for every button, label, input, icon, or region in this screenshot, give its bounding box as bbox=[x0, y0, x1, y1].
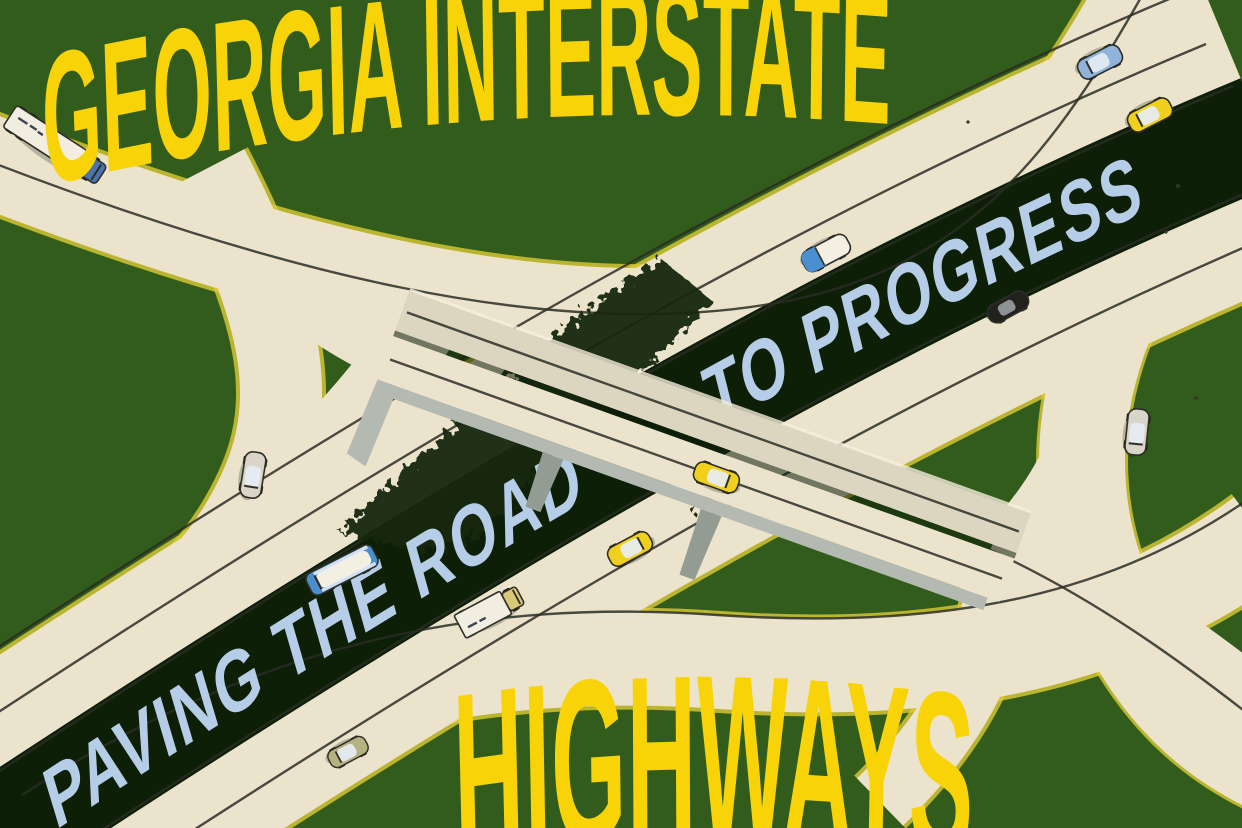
svg-text:HIGHWAYS: HIGHWAYS bbox=[451, 628, 977, 828]
title-highways: HIGHWAYS bbox=[451, 628, 977, 828]
poster-canvas: PAVING THE ROAD TO PROGRESS bbox=[0, 0, 1242, 828]
title-bottom-group: HIGHWAYS bbox=[451, 628, 977, 828]
